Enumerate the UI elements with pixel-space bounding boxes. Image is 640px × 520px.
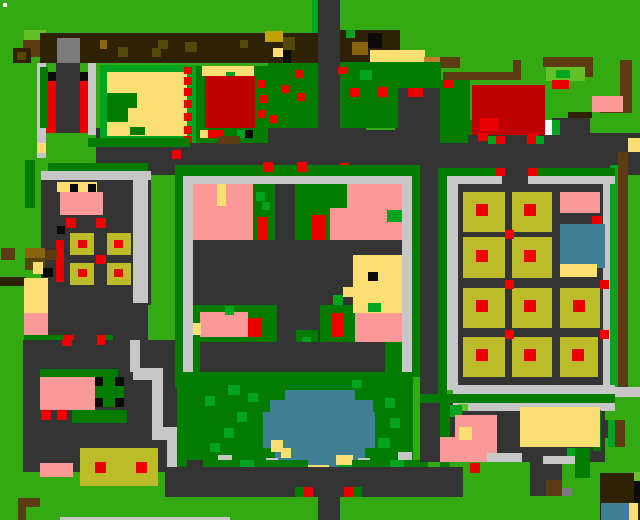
road-asphalt-tile — [275, 184, 295, 247]
hedge-dark-green-tile — [175, 165, 183, 388]
bright-leaf-green-tile — [385, 398, 395, 408]
red-marker-tile — [282, 85, 290, 93]
pink-building-tile — [60, 192, 103, 215]
olive-wood-tile — [185, 42, 197, 52]
wood-fence-tile — [45, 250, 57, 260]
red-marker-tile — [270, 115, 278, 123]
stone-monument-tile — [562, 488, 572, 496]
red-marker-tile — [258, 110, 266, 118]
red-marker-tile — [524, 349, 536, 361]
red-marker-tile — [184, 67, 192, 74]
red-marker-tile — [257, 217, 268, 241]
bright-leaf-green-tile — [567, 448, 575, 456]
red-marker-tile — [263, 162, 273, 172]
wood-fence-tile — [618, 152, 628, 395]
bright-leaf-green-tile — [225, 306, 234, 315]
red-marker-tile — [260, 95, 268, 103]
black-detail-tile — [245, 130, 253, 138]
sidewalk-tile — [447, 176, 458, 390]
hedge-dark-green-tile — [440, 80, 470, 143]
gold-detail-tile — [265, 31, 283, 42]
bright-leaf-green-tile — [248, 393, 258, 402]
hedge-dark-green-tile — [40, 67, 48, 128]
black-detail-tile — [115, 377, 124, 386]
road-asphalt-tile — [200, 342, 385, 372]
red-marker-tile — [478, 133, 488, 141]
pink-building-tile — [40, 463, 73, 477]
red-marker-tile — [114, 240, 123, 248]
dark-brown-wall-tile — [0, 277, 26, 286]
red-marker-tile — [476, 204, 488, 216]
black-detail-tile — [57, 226, 65, 234]
red-marker-tile — [297, 93, 305, 101]
red-marker-tile — [66, 218, 76, 228]
pond-water-tile — [601, 503, 629, 520]
pink-building-tile — [347, 184, 402, 208]
red-marker-tile — [184, 100, 192, 108]
red-marker-tile — [78, 240, 87, 248]
sidewalk-tile — [450, 176, 615, 184]
wood-fence-tile — [218, 136, 240, 144]
hedge-dark-green-tile — [438, 168, 447, 397]
light-grass-patch-tile — [634, 472, 640, 481]
bright-leaf-green-tile — [352, 380, 362, 388]
pale-yellow-building-tile — [520, 407, 600, 447]
sidewalk-tile — [183, 176, 193, 380]
bright-leaf-green-tile — [390, 418, 400, 428]
red-marker-tile — [184, 113, 192, 121]
pale-yellow-building-tile — [459, 427, 472, 440]
black-detail-tile — [115, 398, 124, 407]
road-asphalt-tile — [502, 168, 528, 184]
bright-leaf-green-tile — [224, 428, 234, 438]
red-marker-tile — [78, 269, 87, 277]
black-detail-tile — [368, 272, 378, 281]
hedge-dark-green-tile — [48, 163, 148, 171]
pink-building-tile — [560, 192, 600, 213]
bright-leaf-green-tile — [237, 412, 247, 422]
red-marker-tile — [338, 67, 347, 74]
sidewalk-tile — [133, 180, 148, 303]
red-marker-tile — [572, 349, 584, 361]
game-map-viewport[interactable] — [0, 0, 640, 520]
red-marker-tile — [573, 300, 585, 312]
pale-yellow-building-tile — [273, 48, 283, 57]
red-marker-tile — [524, 300, 536, 312]
hedge-dark-green-tile — [40, 369, 118, 377]
pale-yellow-building-tile — [629, 503, 638, 520]
wood-fence-tile — [440, 57, 460, 68]
hedge-dark-green-tile — [575, 448, 590, 478]
light-wood-tile — [25, 248, 45, 258]
red-marker-tile — [57, 410, 67, 420]
pale-yellow-building-tile — [33, 262, 43, 274]
road-asphalt-tile — [318, 0, 340, 132]
sidewalk-tile — [183, 176, 412, 184]
olive-wood-tile — [158, 40, 168, 49]
red-marker-tile — [552, 80, 569, 89]
pale-yellow-building-tile — [200, 130, 208, 138]
wood-fence-tile — [615, 420, 625, 447]
red-marker-tile — [258, 80, 266, 88]
red-marker-tile — [297, 162, 307, 172]
bright-leaf-green-tile — [488, 136, 496, 144]
red-marker-tile — [505, 330, 514, 339]
bright-leaf-green-tile — [240, 460, 254, 467]
red-marker-tile — [524, 250, 536, 262]
pale-yellow-building-tile — [560, 264, 597, 277]
stone-monument-tile — [57, 38, 80, 63]
sidewalk-tile — [402, 176, 412, 374]
sidewalk-tile — [453, 385, 615, 394]
pale-yellow-building-tile — [193, 323, 201, 335]
white-detail-tile — [3, 3, 7, 7]
bright-leaf-green-tile — [608, 420, 616, 447]
olive-wood-tile — [240, 40, 248, 48]
hedge-dark-green-tile — [107, 93, 137, 108]
black-detail-tile — [283, 50, 291, 63]
black-detail-tile — [368, 33, 382, 48]
wood-fence-tile — [513, 60, 521, 80]
olive-wood-tile — [17, 52, 26, 60]
wood-fence-tile — [18, 507, 26, 520]
red-marker-tile — [378, 87, 388, 97]
bright-leaf-green-tile — [256, 192, 265, 201]
road-asphalt-tile — [420, 128, 441, 175]
sidewalk-tile — [41, 171, 151, 180]
hedge-dark-green-tile — [420, 394, 615, 403]
bright-leaf-green-tile — [360, 70, 372, 80]
bright-leaf-green-tile — [536, 136, 544, 144]
red-marker-tile — [184, 126, 192, 134]
hedge-dark-green-tile — [72, 410, 127, 423]
red-marker-tile — [476, 250, 488, 262]
pink-building-tile — [592, 96, 623, 112]
sidewalk-tile — [130, 340, 140, 372]
red-marker-tile — [136, 462, 147, 473]
light-wood-tile — [352, 42, 368, 55]
red-marker-tile — [528, 168, 537, 176]
wood-fence-tile — [546, 480, 562, 496]
black-detail-tile — [634, 481, 640, 503]
red-marker-tile — [505, 280, 514, 289]
bright-leaf-green-tile — [390, 460, 404, 467]
black-detail-tile — [43, 268, 53, 277]
red-marker-tile — [470, 463, 480, 473]
bright-leaf-green-tile — [346, 30, 355, 38]
red-marker-tile — [96, 218, 106, 228]
bright-leaf-green-tile — [262, 202, 270, 210]
red-building-tile — [205, 76, 255, 128]
pond-water-tile — [560, 224, 605, 268]
red-marker-tile — [505, 230, 514, 239]
pale-yellow-building-tile — [24, 278, 48, 315]
hedge-dark-green-tile — [412, 165, 420, 377]
black-detail-tile — [94, 377, 103, 386]
road-asphalt-tile — [420, 175, 438, 397]
bright-leaf-green-tile — [552, 120, 560, 135]
sidewalk-tile — [615, 387, 640, 397]
red-marker-tile — [600, 280, 609, 289]
red-marker-tile — [480, 118, 498, 131]
red-marker-tile — [56, 240, 64, 282]
hedge-dark-green-tile — [203, 460, 308, 467]
light-wood-tile — [100, 40, 107, 49]
white-detail-tile — [545, 120, 552, 135]
red-marker-tile — [41, 410, 51, 420]
bright-leaf-green-tile — [210, 443, 220, 452]
red-marker-tile — [62, 340, 72, 346]
bright-leaf-green-tile — [368, 303, 381, 312]
bright-leaf-green-tile — [556, 70, 570, 78]
red-marker-tile — [184, 77, 192, 85]
pink-building-tile — [40, 377, 95, 410]
pale-yellow-building-tile — [217, 184, 226, 206]
red-marker-tile — [303, 487, 313, 497]
red-marker-tile — [208, 130, 216, 138]
red-marker-tile — [96, 255, 106, 264]
red-marker-tile — [524, 204, 536, 216]
hedge-dark-green-tile — [25, 160, 35, 208]
pink-building-tile — [355, 313, 402, 342]
bright-leaf-green-tile — [312, 0, 318, 33]
red-marker-tile — [97, 340, 105, 345]
pale-yellow-building-tile — [343, 287, 353, 297]
red-marker-tile — [114, 269, 123, 277]
black-detail-tile — [88, 184, 96, 192]
red-marker-tile — [95, 462, 106, 473]
red-marker-tile — [172, 150, 181, 159]
grass-tile — [590, 118, 632, 133]
hedge-dark-green-tile — [130, 127, 145, 135]
road-asphalt-tile — [165, 467, 463, 497]
red-marker-tile — [527, 136, 536, 144]
sidewalk-tile — [487, 453, 522, 462]
olive-wood-tile — [283, 37, 295, 50]
black-detail-tile — [94, 398, 103, 407]
red-marker-tile — [350, 88, 359, 97]
bright-leaf-green-tile — [333, 295, 343, 305]
pink-building-tile — [24, 313, 48, 338]
sidewalk-tile — [88, 63, 96, 135]
hedge-dark-green-tile — [354, 487, 362, 497]
red-marker-tile — [408, 88, 423, 97]
bright-leaf-green-tile — [378, 438, 390, 448]
bright-leaf-green-tile — [205, 396, 215, 406]
road-asphalt-tile — [601, 420, 608, 438]
wood-fence-tile — [543, 57, 593, 67]
red-marker-tile — [312, 215, 326, 242]
road-asphalt-tile — [318, 497, 340, 520]
red-marker-tile — [332, 313, 343, 337]
red-marker-tile — [592, 216, 602, 225]
wood-fence-tile — [18, 498, 40, 507]
sidewalk-tile — [543, 456, 575, 464]
olive-wood-tile — [118, 47, 128, 57]
pale-yellow-building-tile — [281, 448, 291, 458]
hedge-dark-green-tile — [395, 62, 441, 88]
road-asphalt-tile — [56, 63, 80, 133]
game-map-canvas[interactable] — [0, 0, 640, 520]
red-marker-tile — [496, 136, 505, 144]
red-marker-tile — [248, 318, 262, 337]
wood-fence-tile — [443, 72, 518, 80]
black-detail-tile — [80, 72, 88, 81]
pale-yellow-building-tile — [38, 143, 46, 153]
red-marker-tile — [184, 88, 192, 96]
red-marker-tile — [600, 330, 609, 339]
hedge-dark-green-tile — [295, 487, 303, 497]
red-marker-tile — [344, 487, 354, 497]
black-detail-tile — [70, 184, 78, 192]
bright-leaf-green-tile — [610, 165, 618, 397]
red-marker-tile — [495, 168, 505, 176]
pale-yellow-building-tile — [628, 138, 640, 152]
bright-leaf-green-tile — [387, 210, 402, 222]
hedge-dark-green-tile — [107, 108, 128, 122]
olive-wood-tile — [152, 48, 161, 57]
pale-yellow-building-tile — [336, 455, 353, 465]
red-marker-tile — [443, 80, 453, 88]
red-marker-tile — [80, 81, 88, 133]
hedge-dark-green-tile — [88, 138, 190, 147]
red-marker-tile — [295, 70, 303, 78]
bright-leaf-green-tile — [228, 385, 240, 395]
red-marker-tile — [476, 349, 488, 361]
pink-building-tile — [200, 312, 248, 337]
sidewalk-tile — [152, 368, 163, 428]
red-marker-tile — [476, 300, 488, 312]
pale-yellow-building-tile — [370, 50, 425, 62]
wood-fence-tile — [1, 248, 15, 260]
